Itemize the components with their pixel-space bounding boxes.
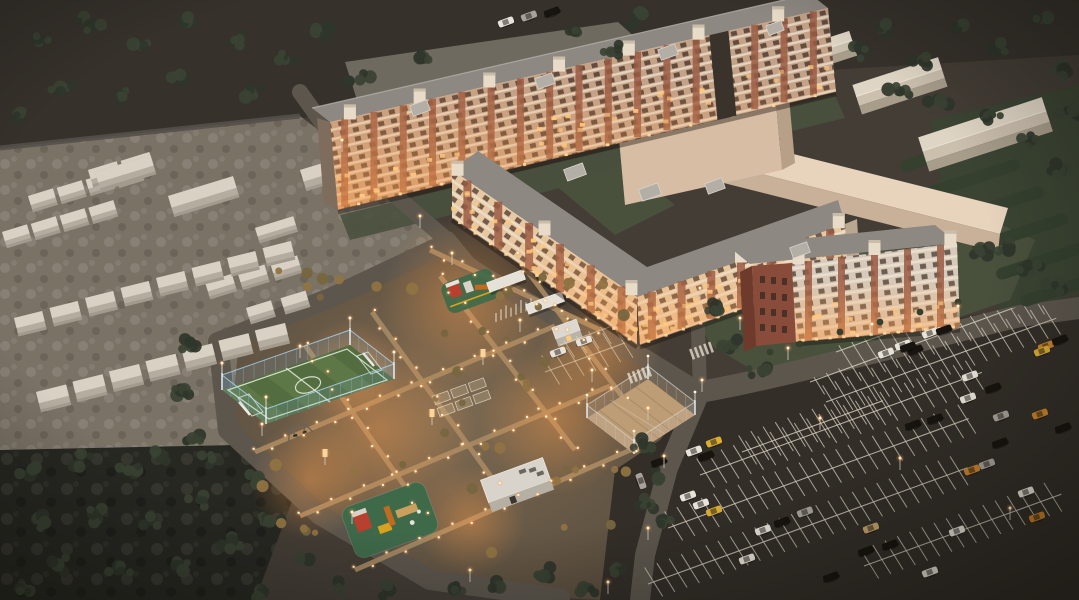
floodlight-lamp bbox=[694, 391, 697, 394]
parapet-cap bbox=[833, 213, 845, 216]
path-light bbox=[569, 479, 571, 481]
floodlight-lamp bbox=[647, 355, 650, 358]
tree bbox=[1055, 287, 1065, 297]
tree bbox=[710, 305, 720, 315]
path-light bbox=[517, 494, 519, 496]
path-light bbox=[394, 338, 396, 340]
streetlight-lamp bbox=[699, 287, 702, 290]
tree bbox=[640, 502, 647, 509]
streetlight-lamp bbox=[261, 423, 264, 426]
entrance-light bbox=[535, 274, 538, 277]
shrub bbox=[564, 278, 575, 289]
entrance-light bbox=[815, 338, 818, 341]
brick-end-window bbox=[760, 276, 765, 283]
path-light bbox=[363, 484, 365, 486]
streetlight-lamp bbox=[819, 417, 822, 420]
path-light bbox=[591, 388, 593, 390]
tree bbox=[1040, 278, 1052, 290]
lit-window bbox=[817, 85, 822, 89]
lit-window bbox=[454, 152, 459, 156]
lit-window bbox=[557, 128, 562, 132]
path-light bbox=[588, 357, 590, 359]
parapet-cap bbox=[944, 231, 956, 234]
shrub bbox=[459, 399, 466, 406]
shrub bbox=[317, 294, 324, 301]
shrub bbox=[312, 530, 318, 536]
path-light bbox=[311, 360, 313, 362]
path-light bbox=[447, 456, 449, 458]
tree bbox=[176, 564, 189, 577]
path-light bbox=[577, 447, 579, 449]
path-light bbox=[515, 378, 517, 380]
path-light bbox=[330, 498, 332, 500]
tree bbox=[290, 56, 300, 66]
tree bbox=[208, 455, 217, 464]
path-light bbox=[415, 366, 417, 368]
streetlight-lamp bbox=[519, 319, 522, 322]
tree bbox=[67, 80, 78, 91]
parapet-cap bbox=[553, 57, 565, 60]
path-light bbox=[284, 434, 286, 436]
streetlight-lamp bbox=[787, 347, 790, 350]
entrance-light bbox=[520, 264, 523, 267]
tree bbox=[748, 371, 756, 379]
shrub bbox=[441, 329, 449, 337]
floodlight-lamp bbox=[221, 362, 224, 365]
lit-window bbox=[427, 158, 432, 162]
tree bbox=[95, 19, 107, 31]
path-light bbox=[524, 341, 526, 343]
path-light bbox=[374, 309, 376, 311]
path-light bbox=[610, 386, 612, 388]
path-light bbox=[483, 471, 485, 473]
lit-window bbox=[374, 190, 379, 194]
path-light bbox=[405, 550, 407, 552]
lit-window bbox=[850, 331, 855, 335]
streetlight-lamp bbox=[419, 215, 422, 218]
tree bbox=[384, 582, 393, 591]
lawn-shrub bbox=[797, 341, 804, 348]
tree bbox=[257, 84, 266, 93]
tree bbox=[1002, 243, 1016, 257]
tree bbox=[278, 50, 286, 58]
floodlight-lamp bbox=[633, 430, 636, 433]
lit-window bbox=[472, 226, 477, 230]
lawn-shrub bbox=[837, 329, 844, 336]
shrub bbox=[334, 275, 344, 285]
streetlight-lamp bbox=[591, 369, 594, 372]
path-light bbox=[550, 479, 552, 481]
lit-window bbox=[832, 302, 837, 306]
path-light bbox=[537, 328, 539, 330]
poster-panel bbox=[430, 409, 435, 417]
tree bbox=[16, 587, 25, 596]
streetlight-lamp bbox=[957, 305, 960, 308]
tree bbox=[610, 568, 619, 577]
streetlight-lamp bbox=[739, 317, 742, 320]
tree bbox=[731, 334, 743, 346]
entrance-light bbox=[357, 202, 360, 205]
tree bbox=[126, 37, 140, 51]
tree bbox=[44, 36, 52, 44]
lawn-shrub bbox=[877, 319, 884, 326]
path-light bbox=[442, 273, 444, 275]
tree bbox=[574, 586, 586, 598]
lit-window bbox=[663, 120, 668, 124]
path-light bbox=[414, 470, 416, 472]
path-light bbox=[395, 471, 397, 473]
brick-end-window bbox=[760, 308, 765, 315]
lit-window bbox=[663, 322, 668, 326]
lit-window bbox=[578, 128, 583, 132]
tree bbox=[571, 27, 579, 35]
path-light bbox=[391, 473, 393, 475]
path-light bbox=[558, 402, 560, 404]
lit-window bbox=[345, 174, 350, 178]
path-light bbox=[492, 355, 494, 357]
floodlight-lamp bbox=[393, 351, 396, 354]
tree bbox=[334, 583, 343, 592]
entrance-light bbox=[606, 143, 609, 146]
lit-window bbox=[411, 173, 416, 177]
tree bbox=[647, 443, 656, 452]
path-light bbox=[535, 303, 537, 305]
tree bbox=[171, 385, 178, 392]
streetlight-lamp bbox=[299, 345, 302, 348]
lit-window bbox=[551, 116, 556, 120]
path-light bbox=[566, 317, 568, 319]
shrub bbox=[257, 480, 269, 492]
path-light bbox=[509, 360, 511, 362]
tree bbox=[321, 20, 334, 33]
tree bbox=[19, 107, 27, 115]
shrub bbox=[621, 466, 631, 476]
shrub bbox=[618, 309, 630, 321]
shrub bbox=[572, 466, 579, 473]
lit-window bbox=[685, 315, 690, 319]
tree bbox=[297, 555, 305, 563]
brick-end-window bbox=[771, 293, 776, 300]
tree bbox=[1016, 133, 1027, 144]
lit-window bbox=[440, 154, 445, 158]
brick-end-window bbox=[782, 326, 787, 333]
path-light bbox=[554, 304, 556, 306]
shrub bbox=[611, 466, 618, 473]
lit-window bbox=[526, 250, 531, 254]
path-light bbox=[616, 451, 618, 453]
lit-window bbox=[612, 117, 617, 121]
lit-window bbox=[537, 127, 542, 131]
lit-window bbox=[336, 177, 341, 181]
path-light bbox=[378, 327, 380, 329]
lit-window bbox=[938, 301, 943, 305]
shrub bbox=[399, 461, 406, 468]
path-light bbox=[499, 482, 501, 484]
lit-window bbox=[580, 123, 585, 127]
path-light bbox=[441, 414, 443, 416]
streetlight-lamp bbox=[469, 569, 472, 572]
entrance-light bbox=[734, 309, 737, 312]
tree bbox=[33, 32, 41, 40]
tree bbox=[38, 516, 51, 529]
entrance-light bbox=[856, 334, 859, 337]
lit-window bbox=[565, 114, 570, 118]
path-light bbox=[566, 328, 568, 330]
lit-window bbox=[475, 203, 480, 207]
path-light bbox=[532, 389, 534, 391]
tree bbox=[117, 566, 125, 574]
brick-end-face bbox=[752, 263, 796, 346]
parapet-cap bbox=[772, 6, 784, 9]
lit-window bbox=[516, 228, 521, 232]
path-light bbox=[430, 246, 432, 248]
lit-window bbox=[815, 314, 820, 318]
path-light bbox=[407, 483, 409, 485]
lit-window bbox=[688, 302, 693, 306]
entrance-light bbox=[829, 336, 832, 339]
lit-window bbox=[605, 113, 610, 117]
brick-end-window bbox=[782, 310, 787, 317]
path-light bbox=[585, 318, 587, 320]
tree bbox=[145, 511, 156, 522]
streetlight-lamp bbox=[647, 407, 650, 410]
lit-window bbox=[682, 304, 687, 308]
lit-window bbox=[699, 88, 704, 92]
path-light bbox=[429, 381, 431, 383]
path-light bbox=[493, 429, 495, 431]
path-light bbox=[492, 275, 494, 277]
lit-window bbox=[773, 79, 778, 83]
entrance-light bbox=[664, 334, 667, 337]
tree bbox=[184, 336, 195, 347]
path-light bbox=[371, 445, 373, 447]
lit-window bbox=[539, 142, 544, 146]
tree bbox=[997, 112, 1004, 119]
path-light bbox=[478, 453, 480, 455]
path-light bbox=[627, 397, 629, 399]
path-light bbox=[474, 274, 476, 276]
path-light bbox=[427, 512, 429, 514]
path-light bbox=[578, 402, 580, 404]
path-light bbox=[303, 434, 305, 436]
path-light bbox=[597, 332, 599, 334]
lit-window bbox=[633, 327, 638, 331]
shrub bbox=[371, 281, 381, 291]
tree bbox=[1033, 15, 1041, 23]
lit-window bbox=[360, 194, 365, 198]
tree bbox=[61, 553, 70, 562]
path-light bbox=[554, 418, 556, 420]
tree bbox=[319, 31, 330, 42]
entrance-light bbox=[551, 285, 554, 288]
tree bbox=[134, 463, 141, 470]
brick-end-window bbox=[771, 325, 776, 332]
path-light bbox=[536, 493, 538, 495]
path-light bbox=[366, 408, 368, 410]
tree bbox=[75, 450, 84, 459]
lit-window bbox=[552, 273, 557, 277]
parapet-cap bbox=[625, 280, 637, 283]
lit-window bbox=[531, 239, 536, 243]
parapet-cap bbox=[623, 41, 635, 44]
path-light bbox=[352, 566, 354, 568]
lit-window bbox=[693, 299, 698, 303]
tree bbox=[587, 585, 595, 593]
path-light bbox=[367, 427, 369, 429]
lit-window bbox=[892, 307, 897, 311]
lit-window bbox=[824, 66, 829, 70]
tree bbox=[149, 445, 161, 457]
path-light bbox=[462, 443, 464, 445]
tree bbox=[174, 69, 186, 81]
shrub bbox=[540, 357, 551, 368]
shrub bbox=[522, 379, 530, 387]
path-light bbox=[436, 395, 438, 397]
path-light bbox=[252, 448, 254, 450]
parapet-cap bbox=[693, 25, 705, 28]
path-light bbox=[428, 457, 430, 459]
path-light bbox=[443, 259, 445, 261]
tree bbox=[73, 461, 85, 473]
entrance-light bbox=[648, 134, 651, 137]
tree bbox=[1049, 157, 1062, 170]
tree bbox=[215, 456, 224, 465]
path-light bbox=[447, 291, 449, 293]
tree bbox=[1054, 108, 1065, 119]
streetlight-lamp bbox=[701, 379, 704, 382]
tree bbox=[496, 584, 504, 592]
lit-window bbox=[934, 305, 939, 309]
path-light bbox=[583, 465, 585, 467]
entrance-light bbox=[814, 94, 817, 97]
entrance-light bbox=[689, 124, 692, 127]
path-light bbox=[560, 436, 562, 438]
tree bbox=[716, 340, 730, 354]
tree bbox=[307, 555, 314, 562]
lit-window bbox=[657, 93, 662, 97]
tree bbox=[625, 19, 637, 31]
tree bbox=[413, 51, 426, 64]
shrub bbox=[406, 283, 418, 295]
entrance-light bbox=[458, 221, 461, 224]
path-light bbox=[539, 281, 541, 283]
aerial-render bbox=[0, 0, 1079, 600]
lit-window bbox=[633, 109, 638, 113]
tree bbox=[117, 91, 127, 101]
entrance-light bbox=[581, 306, 584, 309]
parapet-cap bbox=[539, 221, 551, 224]
tree bbox=[958, 20, 966, 28]
path-light bbox=[470, 320, 472, 322]
path-light bbox=[460, 368, 462, 370]
shrub bbox=[270, 459, 282, 471]
tree bbox=[652, 472, 664, 484]
path-light bbox=[327, 370, 329, 372]
tree bbox=[450, 585, 459, 594]
tree bbox=[46, 556, 58, 568]
lit-window bbox=[893, 312, 898, 316]
streetlight-lamp bbox=[451, 252, 454, 255]
brick-end-window bbox=[771, 277, 776, 284]
path-light bbox=[544, 299, 546, 301]
path-light bbox=[583, 339, 585, 341]
poster-panel bbox=[481, 349, 486, 357]
tree bbox=[1052, 170, 1061, 179]
path-light bbox=[418, 537, 420, 539]
tree bbox=[857, 54, 865, 62]
shrub bbox=[303, 282, 312, 291]
entrance-light bbox=[597, 316, 600, 319]
lit-window bbox=[654, 308, 659, 312]
lit-window bbox=[393, 167, 398, 171]
path-light bbox=[397, 394, 399, 396]
tree bbox=[24, 587, 32, 595]
path-light bbox=[602, 464, 604, 466]
streetlight-lamp bbox=[1009, 507, 1012, 510]
lit-window bbox=[451, 207, 456, 211]
tree bbox=[86, 452, 94, 460]
entrance-light bbox=[911, 329, 914, 332]
entrance-light bbox=[474, 232, 477, 235]
tree bbox=[182, 11, 194, 23]
path-light bbox=[487, 331, 489, 333]
tree bbox=[224, 543, 235, 554]
lit-window bbox=[586, 285, 591, 289]
lit-window bbox=[647, 316, 652, 320]
path-light bbox=[438, 536, 440, 538]
tree bbox=[607, 48, 615, 56]
tree bbox=[934, 93, 947, 106]
streetlight-lamp bbox=[351, 511, 354, 514]
path-light bbox=[635, 450, 637, 452]
tree bbox=[184, 494, 193, 503]
shrub bbox=[301, 268, 312, 279]
path-light bbox=[473, 355, 475, 357]
tree bbox=[27, 463, 39, 475]
entrance-light bbox=[682, 328, 685, 331]
tree bbox=[138, 520, 149, 531]
tree bbox=[633, 8, 640, 15]
floodlight-lamp bbox=[586, 394, 589, 397]
path-light bbox=[492, 349, 494, 351]
lawn-shrub bbox=[767, 349, 774, 356]
shrub bbox=[440, 428, 449, 437]
tree bbox=[1057, 71, 1068, 82]
brick-end-window bbox=[782, 278, 787, 285]
shrub bbox=[606, 520, 616, 530]
shrub bbox=[275, 267, 282, 274]
tree bbox=[47, 86, 55, 94]
entrance-light bbox=[523, 163, 526, 166]
lit-window bbox=[506, 220, 511, 224]
path-light bbox=[457, 424, 459, 426]
brick-end-window bbox=[760, 292, 765, 299]
path-light bbox=[379, 395, 381, 397]
shrub bbox=[317, 273, 329, 285]
tree bbox=[1031, 135, 1039, 143]
tree bbox=[537, 569, 551, 583]
tree bbox=[760, 363, 772, 375]
path-light bbox=[526, 416, 528, 418]
path-light bbox=[382, 484, 384, 486]
entrance-light bbox=[504, 253, 507, 256]
parapet-cap bbox=[344, 104, 356, 107]
entrance-light bbox=[842, 335, 845, 338]
tree bbox=[197, 450, 207, 460]
tree bbox=[657, 519, 666, 528]
floodlight-lamp bbox=[349, 317, 352, 320]
lit-window bbox=[704, 284, 709, 288]
